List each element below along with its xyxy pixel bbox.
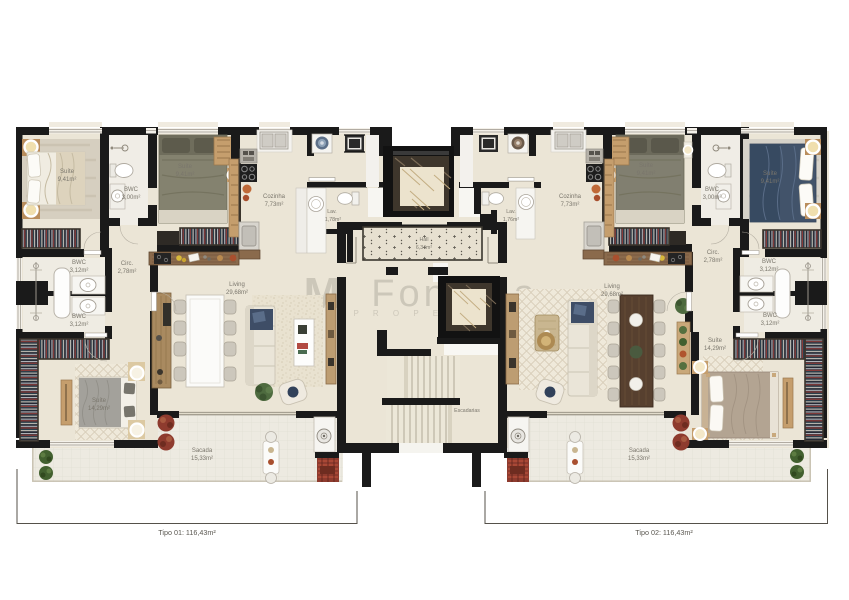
svg-text:Sacada: Sacada xyxy=(192,448,213,454)
svg-text:14,29m²: 14,29m² xyxy=(88,406,110,412)
svg-text:Suíte: Suíte xyxy=(763,171,778,177)
svg-text:14,29m²: 14,29m² xyxy=(704,346,726,352)
svg-text:Cozinha: Cozinha xyxy=(559,194,582,200)
svg-text:9,41m²: 9,41m² xyxy=(58,177,77,183)
svg-text:Hall: Hall xyxy=(420,237,429,243)
svg-text:3,00m²: 3,00m² xyxy=(122,195,141,201)
svg-text:BWC: BWC xyxy=(124,187,139,193)
svg-text:Cozinha: Cozinha xyxy=(263,194,286,200)
svg-text:Circ.: Circ. xyxy=(707,250,720,256)
svg-text:Sacada: Sacada xyxy=(629,448,650,454)
svg-text:1,76m²: 1,76m² xyxy=(503,217,519,223)
svg-text:Suíte: Suíte xyxy=(639,163,654,169)
svg-text:Suíte: Suíte xyxy=(178,164,193,170)
svg-text:Circ.: Circ. xyxy=(121,261,134,267)
svg-text:3,12m²: 3,12m² xyxy=(761,321,780,327)
svg-text:9,41m²: 9,41m² xyxy=(637,171,656,177)
svg-text:3,00m²: 3,00m² xyxy=(703,195,722,201)
svg-text:BWC: BWC xyxy=(705,187,720,193)
svg-text:9,41m²: 9,41m² xyxy=(176,172,195,178)
svg-text:29,68m²: 29,68m² xyxy=(226,290,248,296)
svg-text:15,33m²: 15,33m² xyxy=(628,456,650,462)
svg-text:BWC: BWC xyxy=(763,313,778,319)
svg-text:3,12m²: 3,12m² xyxy=(70,322,89,328)
svg-text:Suíte: Suíte xyxy=(92,398,107,404)
svg-text:7,73m²: 7,73m² xyxy=(561,202,580,208)
svg-text:9,41m²: 9,41m² xyxy=(761,179,780,185)
svg-text:Living: Living xyxy=(604,284,620,290)
svg-text:7,73m²: 7,73m² xyxy=(265,202,284,208)
svg-text:3,12m²: 3,12m² xyxy=(70,268,89,274)
svg-text:15,33m²: 15,33m² xyxy=(191,456,213,462)
svg-text:Living: Living xyxy=(229,282,245,288)
svg-text:Lav.: Lav. xyxy=(327,209,336,215)
svg-text:2,78m²: 2,78m² xyxy=(704,258,723,264)
svg-text:6,34m²: 6,34m² xyxy=(416,245,432,251)
svg-text:1,78m²: 1,78m² xyxy=(325,217,341,223)
svg-text:BWC: BWC xyxy=(72,314,87,320)
svg-text:29,68m²: 29,68m² xyxy=(601,292,623,298)
svg-text:2,78m²: 2,78m² xyxy=(118,269,137,275)
svg-text:BWC: BWC xyxy=(762,259,777,265)
svg-text:Tipo 01: 116,43m²: Tipo 01: 116,43m² xyxy=(158,528,216,537)
svg-text:Escadarias: Escadarias xyxy=(454,408,480,414)
svg-text:Lav.: Lav. xyxy=(506,209,515,215)
svg-text:3,12m²: 3,12m² xyxy=(760,267,779,273)
svg-text:Suíte: Suíte xyxy=(708,338,723,344)
svg-text:BWC: BWC xyxy=(72,260,87,266)
svg-text:Suíte: Suíte xyxy=(60,169,75,175)
svg-text:Tipo 02: 116,43m²: Tipo 02: 116,43m² xyxy=(635,528,693,537)
